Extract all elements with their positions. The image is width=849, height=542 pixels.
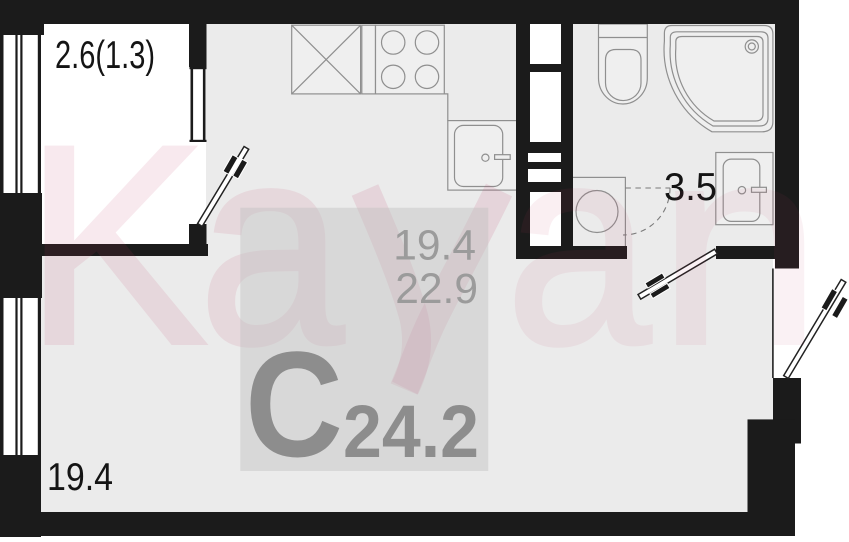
svg-text:19.4: 19.4 bbox=[47, 456, 113, 499]
svg-text:С: С bbox=[245, 320, 343, 488]
svg-text:19.4: 19.4 bbox=[393, 223, 476, 270]
svg-text:a: a bbox=[506, 87, 653, 404]
svg-text:22.9: 22.9 bbox=[395, 266, 478, 313]
svg-text:24.2: 24.2 bbox=[343, 390, 479, 473]
svg-text:K: K bbox=[24, 87, 207, 404]
svg-text:n: n bbox=[658, 87, 821, 404]
svg-text:2.6(1.3): 2.6(1.3) bbox=[55, 34, 155, 77]
